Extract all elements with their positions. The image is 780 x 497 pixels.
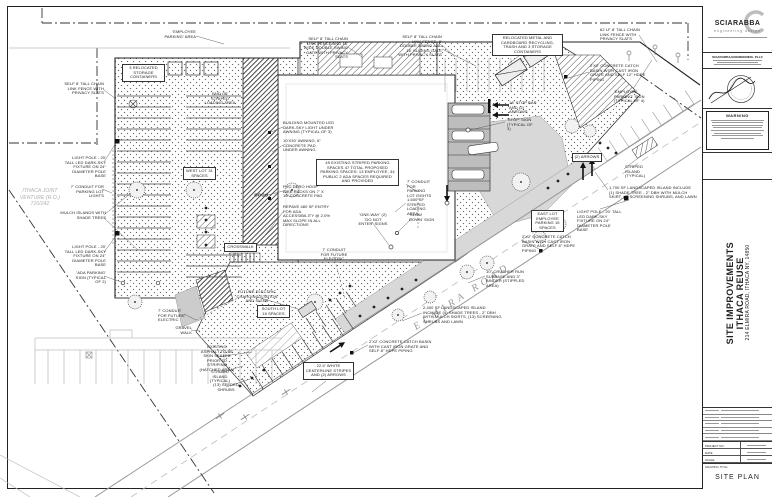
annotation-centerline-stripes: 22.5' WHITE CENTERLINE STRIPES AND (2) A… xyxy=(303,362,354,380)
annotation-landscaped-island-2400: 2,400 SF LANDSCAPED ISLAND INCLUDE (4) S… xyxy=(423,306,503,324)
field-row-project-no: PROJECT NO. xyxy=(703,442,772,449)
project-info-table: PROJECT NO. DATE SCALE xyxy=(703,442,772,464)
firm-logo-tagline: engineering design xyxy=(703,29,772,33)
project-title-line1: SITE IMPROVEMENTS xyxy=(725,242,735,344)
signature-icon xyxy=(709,78,755,99)
warning-line xyxy=(714,133,762,134)
field-value xyxy=(741,442,772,448)
annotation-awning: 10'X30' AWNING, 6" CONCRETE PAD UNDER AW… xyxy=(283,139,327,153)
annotation-one-way-signs: 'ONE-WAY' (2) 'DO NOT ENTER' SIGNS xyxy=(358,213,388,227)
revision-table xyxy=(703,408,772,442)
revision-row xyxy=(703,434,772,441)
annotation-mulch-islands: MULCH ISLANDS WITH SHADE TREES xyxy=(60,211,106,220)
annotation-light-pole-east: LIGHT POLE - 20' TALL LED DARK-SKY FIXTU… xyxy=(577,210,623,233)
annotation-conduit-parking-east: 7' CONDUIT FOR PARKING LOT LIGHTS xyxy=(407,180,433,198)
annotation-gravel-walk: GRAVEL WALK xyxy=(166,326,192,335)
annotation-seeded-shrubs: (13) SEEDED SHRUBS xyxy=(213,383,239,392)
annotation-stop-sign: 'STOP' SIGN (TYPICAL OF 3) xyxy=(507,118,537,132)
annotation-striped-island-east: STRIPED ISLAND (TYPICAL) xyxy=(625,165,659,179)
field-label: PROJECT NO. xyxy=(703,442,741,448)
project-title-line2: ITHACA REUSE xyxy=(735,242,745,344)
annotation-light-pole-west-2: LIGHT POLE - 20' TALL LED DARK-SKY FIXTU… xyxy=(62,245,106,268)
title-block: SCIARABBA engineering design SCIARABBA E… xyxy=(702,6,772,489)
annotation-light-pole-west-1: LIGHT POLE - 20' TALL LED DARK-SKY FIXTU… xyxy=(62,156,106,179)
annotation-catch-basin-east: 2'X2' CONCRETE CATCH BASIN WITH CAST IRO… xyxy=(522,235,582,253)
annotation-bike-racks: PVC DERO HOOP BIKE RACKS ON 7' X 16' CON… xyxy=(283,185,327,199)
pe-stamp xyxy=(703,69,772,109)
project-title-block: SITE IMPROVEMENTS ITHACA REUSE 214 ELMIR… xyxy=(703,180,772,408)
field-value xyxy=(741,456,772,462)
warning-line xyxy=(712,135,763,136)
drawing-title-block: DRAWING TITLE SITE PLAN xyxy=(703,464,772,489)
annotation-conduit-future-center: 7' CONDUIT FOR FUTURE ELECTRIC xyxy=(319,248,349,262)
annotation-fence-62lf: 62 LF 8' TALL CHAIN LINK FENCE WITH PRIV… xyxy=(600,28,640,42)
annotation-catch-basin-south: 2'X2' CONCRETE CATCH BASIN WITH CAST IRO… xyxy=(369,340,433,354)
annotation-relocated-recycling: RELOCATED METAL AND CARDBOARD RECYCLING,… xyxy=(492,34,563,56)
revision-row xyxy=(703,408,772,415)
annotation-two-arrows: (2) ARROWS xyxy=(572,153,602,162)
warning-line xyxy=(721,138,754,139)
warning-line xyxy=(712,122,762,123)
annotation-stop-bar: 18' STOP BAR AND (2) ARROWS xyxy=(509,101,541,115)
address-line xyxy=(713,60,763,61)
firm-logo-name: SCIARABBA xyxy=(703,20,772,27)
address-line xyxy=(717,62,758,63)
warning-line xyxy=(713,127,762,128)
annotation-crosswalk: CROSSWALK xyxy=(224,243,257,252)
revision-row xyxy=(703,428,772,435)
warning-line xyxy=(712,125,764,126)
annotation-repave-entry: REPAVE 480 SF ENTRY FOR ADA ACCESSIBILIT… xyxy=(283,205,331,228)
revision-row xyxy=(703,421,772,428)
revision-row xyxy=(703,415,772,422)
annotation-west-lot: WEST LOT 31 SPACES xyxy=(183,167,216,180)
pe-seal-icon xyxy=(703,69,772,109)
annotation-end-striped-loading: END OF STRIPED LOADING AREA xyxy=(203,92,237,106)
annotation-parking-count-note: 49 EXISTING STRIPED PARKING SPACES 47 TO… xyxy=(316,159,399,186)
field-row-scale: SCALE xyxy=(703,456,772,463)
field-row-date: DATE xyxy=(703,449,772,456)
annotation-employee-parking-area: 'EMPLOYEE PARKING' AREA xyxy=(158,30,196,39)
annotation-ada-parking-sign: 'ADA PARKING' SIGN (TYPICAL OF 2) xyxy=(72,271,106,285)
annotation-fence-west: SELF 8' TALL CHAIN LINK FENCE WITH PRIVA… xyxy=(62,82,104,96)
firm-address-block: SCIARABBA ENGINEERING, PLLC xyxy=(703,53,772,69)
annotation-layer: 'EMPLOYEE PARKING' AREA3 RELOCATED STORA… xyxy=(0,0,780,497)
drawing-title-label: DRAWING TITLE xyxy=(703,464,772,469)
firm-logo: SCIARABBA engineering design xyxy=(703,6,772,53)
annotation-south-lot: SOUTH LOT 16 SPACES xyxy=(257,305,290,318)
warning-line xyxy=(711,120,765,121)
annotation-conduit-parking-west: 7' CONDUIT FOR PARKING LOT LIGHTS xyxy=(68,185,104,199)
annotation-fence-north-gate: SELF 8' TALL CHAIN LINK FENCE AND 16' WI… xyxy=(302,37,348,60)
plan-sheet: ELMIRA ROAD xyxy=(0,0,780,497)
field-label: DATE xyxy=(703,449,741,455)
drawing-title: SITE PLAN xyxy=(703,474,772,481)
warning-box: WARNING xyxy=(706,111,769,150)
annotation-conduit-future-sw: 7' CONDUIT FOR FUTURE ELECTRIC xyxy=(158,309,186,323)
annotation-east-lot: EAST LOT EMPLOYEE PARKING 15 SPACES xyxy=(531,210,564,232)
titleblock-spacer xyxy=(703,153,772,180)
field-value xyxy=(741,449,772,455)
annotation-catch-basin-ne: 2'X2' CONCRETE CATCH BASIN WITH CAST IRO… xyxy=(590,64,646,82)
annotation-parcel-label: ITHACA JOINT VENTURE (R.O.) 710/242 xyxy=(14,188,66,208)
annotation-building-led-lights: BUILDING MOUNTED LED DARK-SKY LIGHT UNDE… xyxy=(283,121,339,135)
firm-name: SCIARABBA ENGINEERING, PLLC xyxy=(703,55,772,59)
annotation-relocated-storage-containers: 3 RELOCATED STORAGE CONTAINERS xyxy=(122,64,165,82)
warning-line xyxy=(711,130,763,131)
address-line xyxy=(714,64,761,65)
project-address: 214 ELMIRA ROAD, ITHACA NY, 14850 xyxy=(745,242,751,343)
annotation-employee-parking-sign: 'EMPLOYEE PARKING' SIGN (TYPICAL OF 4) xyxy=(614,90,658,104)
annotation-crusher-run: 10" CRUSHER RUN SUBBASE AND 3" BINDER (S… xyxy=(486,270,534,288)
warning-block: WARNING xyxy=(703,109,772,153)
annotation-fence-north-sliding-gate: SELF 8' TALL CHAIN LINK FENCE, 8' DOUBLE… xyxy=(396,35,442,58)
field-label: SCALE xyxy=(703,456,741,462)
logo-divider xyxy=(708,37,767,38)
warning-title: WARNING xyxy=(709,113,766,118)
annotation-landscaped-island-1700: 1,700 SF LANDSCAPED ISLAND INCLUDE (1) S… xyxy=(609,186,697,200)
annotation-future-ev-charging: FUTURE ELECTRIC CHARGING STATION AND SIG… xyxy=(236,290,278,304)
annotation-slow-down-sign: 'SLOW DOWN' SIGN xyxy=(409,213,435,222)
